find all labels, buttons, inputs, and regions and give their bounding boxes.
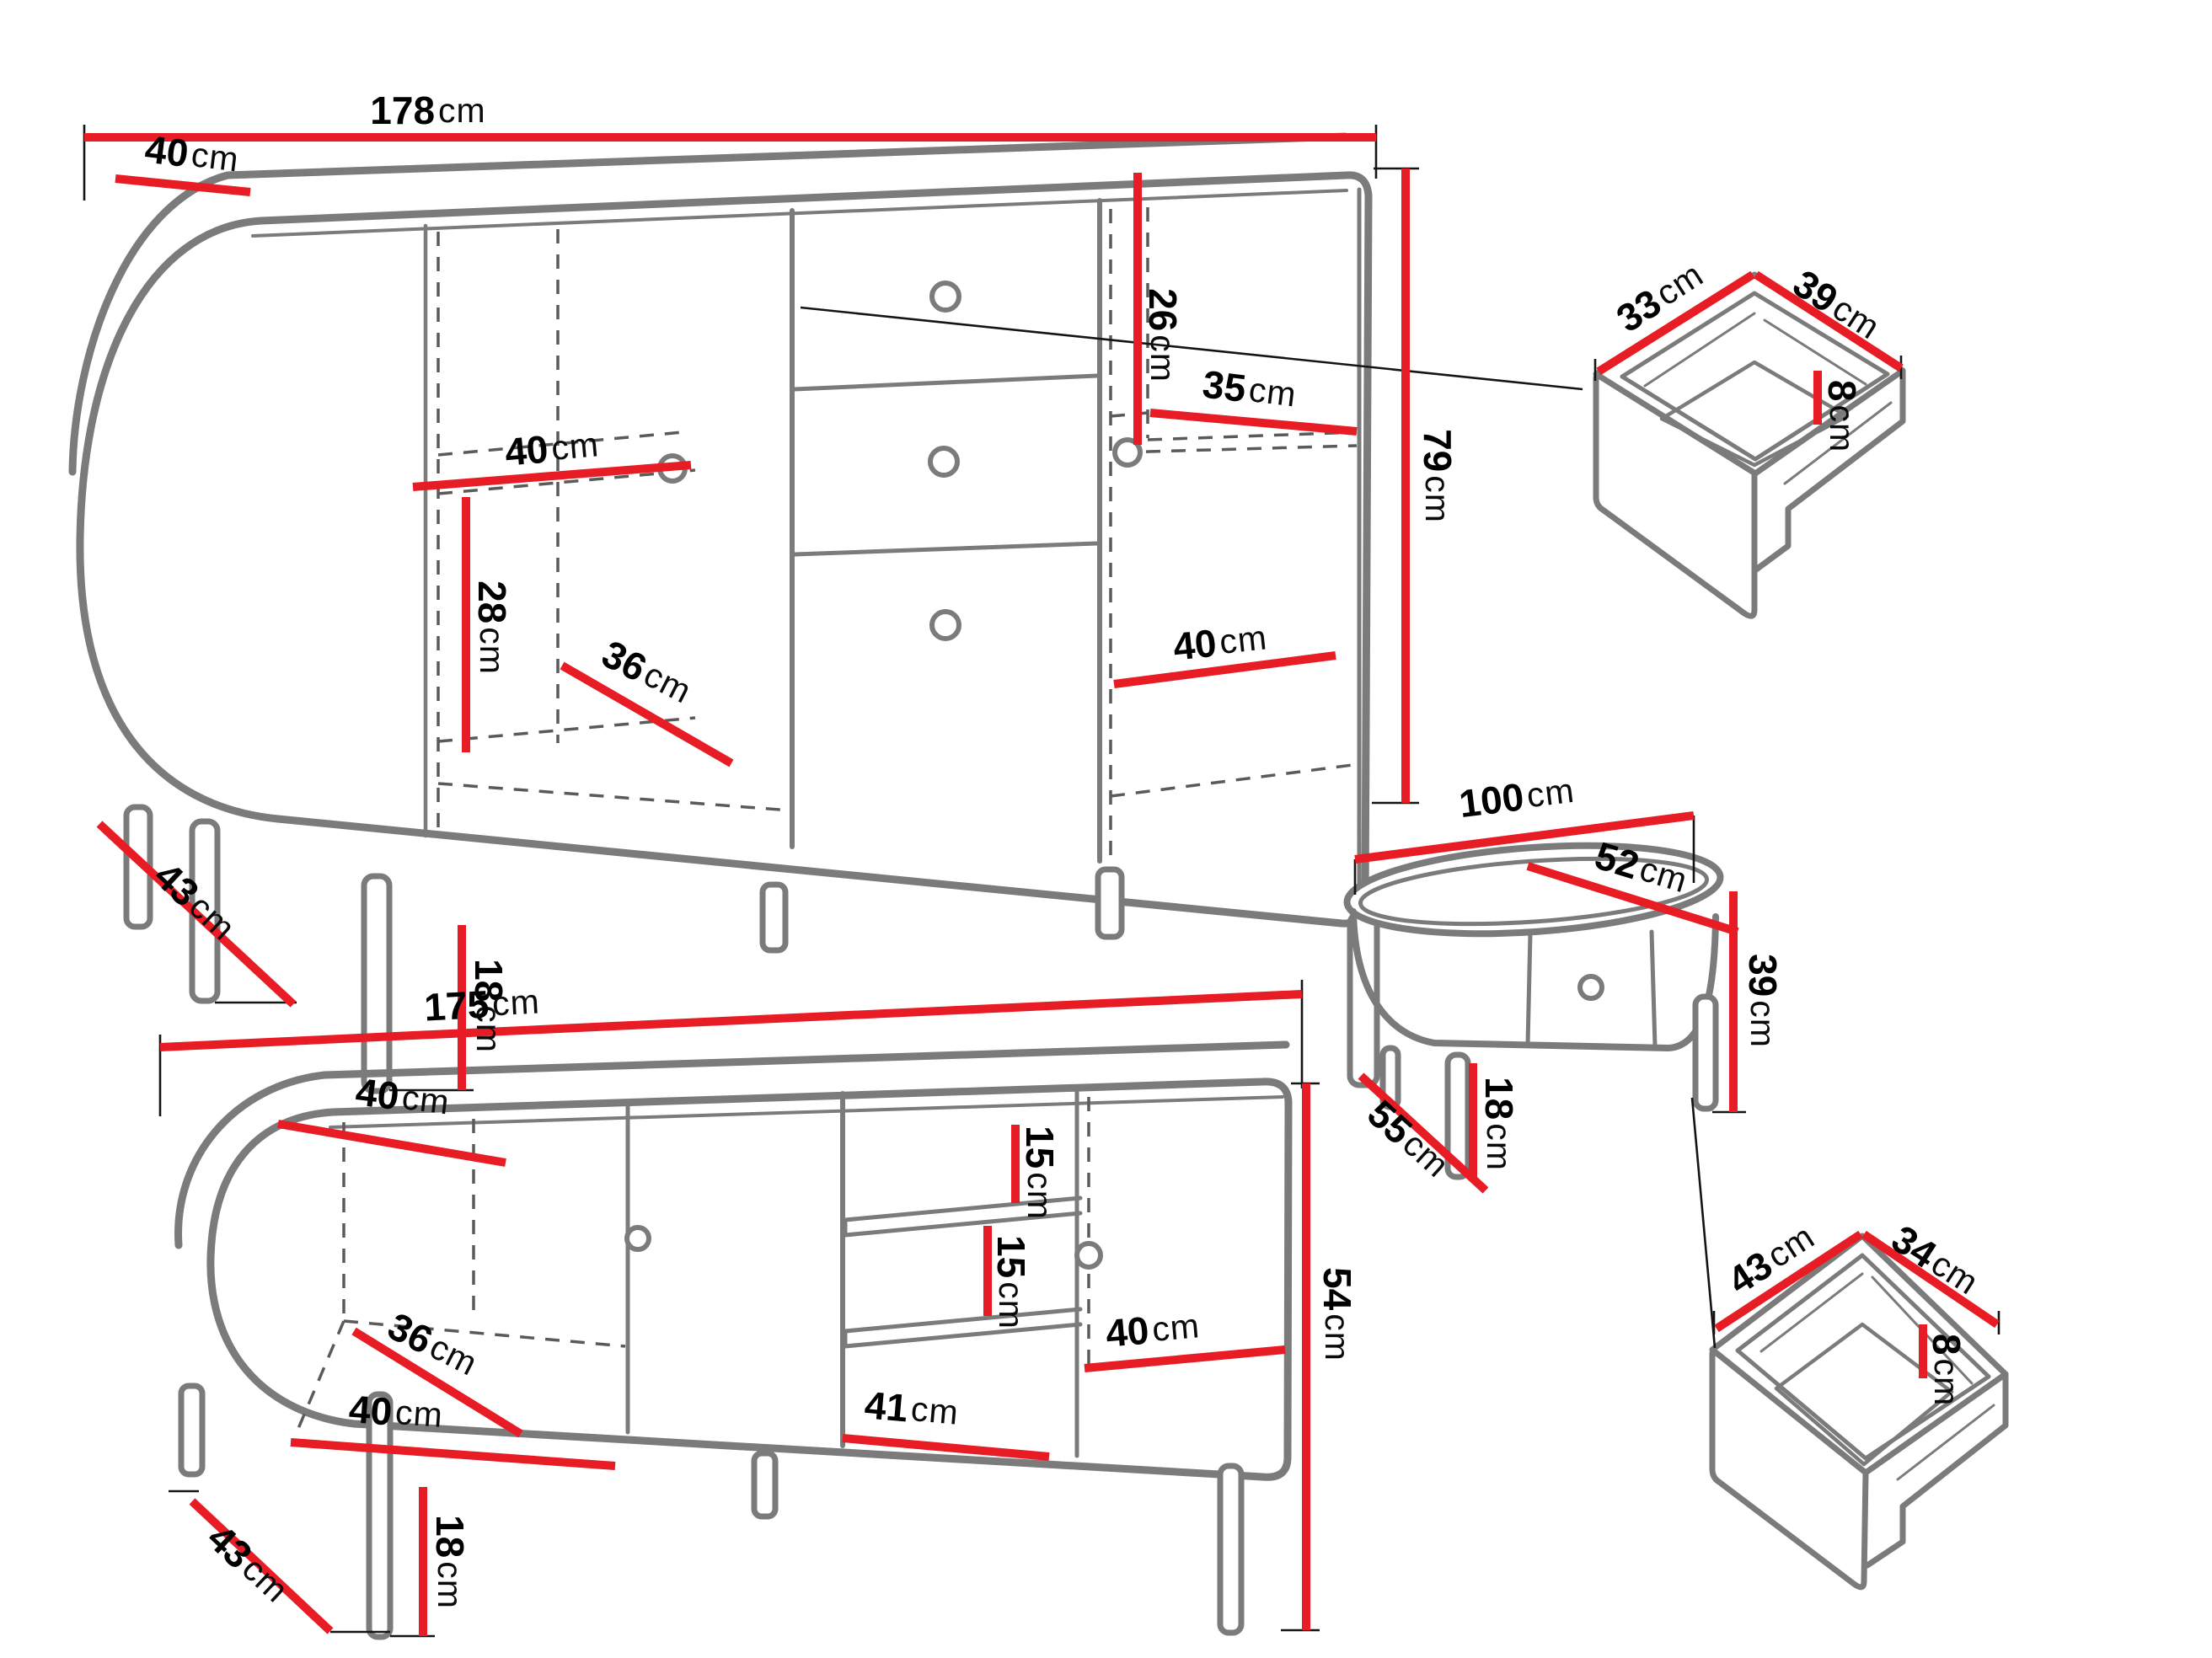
furniture-dimensions-diagram: 178cm 40cm 40cm 26cm 35cm 79cm 28cm 36cm… [0,0,2212,1658]
tvstand-door-knob-right [1077,1243,1101,1267]
tvstand-15b-label: 15cm [989,1235,1033,1329]
drawer-br-8-label: 8cm [1925,1334,1968,1406]
tvstand-height-label: 54cm [1315,1267,1359,1361]
coffeetable-drawer-knob [1580,976,1602,998]
tvstand-foot-middle [754,1453,775,1516]
drawer-tr-8-label: 8cm [1820,380,1864,452]
connector-table-to-drawer [1692,1098,1715,1348]
coffeetable-leg-right [1695,997,1716,1109]
sideboard-height-label: 79cm [1416,429,1459,523]
sideboard-drawing [72,136,1377,1091]
sideboard-foot-middle [763,885,785,950]
tvstand-15a-label: 15cm [1018,1126,1062,1220]
coffeetable-drawer-line-left [1528,933,1530,1045]
sideboard-depth-line [115,179,250,192]
tvstand-40lb-label: 40cm [347,1387,444,1437]
coffeetable-39-label: 39cm [1741,954,1785,1048]
tvstand-door-knob-middle [627,1227,649,1249]
tvstand-43-label: 43cm [199,1516,297,1612]
tvstand-40lb-line [291,1442,615,1466]
sideboard-foot-right-mid [1098,869,1122,937]
sideboard-26-label: 26cm [1141,288,1185,382]
sideboard-drawer-knob-3 [932,612,959,639]
tvstand-18-label: 18cm [428,1515,472,1609]
tvstand-width-line [160,994,1302,1047]
coffeetable-100-label: 100cm [1457,768,1577,826]
sideboard-28-label: 28cm [470,580,514,675]
coffeetable-18-label: 18cm [1477,1077,1521,1171]
coffeetable-drawer-line-right [1652,932,1655,1046]
coffeetable-55-label: 55cm [1359,1091,1459,1186]
sideboard-drawer-knob-2 [930,448,957,475]
sideboard-leg-left-tall [364,876,389,1091]
sideboard-width-label: 178cm [370,88,485,132]
diagram-canvas: 178cm 40cm 40cm 26cm 35cm 79cm 28cm 36cm… [0,0,2212,1658]
tvstand-width-label: 175cm [423,979,541,1029]
tvstand-leg-right [1220,1466,1241,1633]
sideboard-drawer-knob-1 [932,283,959,310]
tvstand-leg-rear-left [181,1386,202,1474]
